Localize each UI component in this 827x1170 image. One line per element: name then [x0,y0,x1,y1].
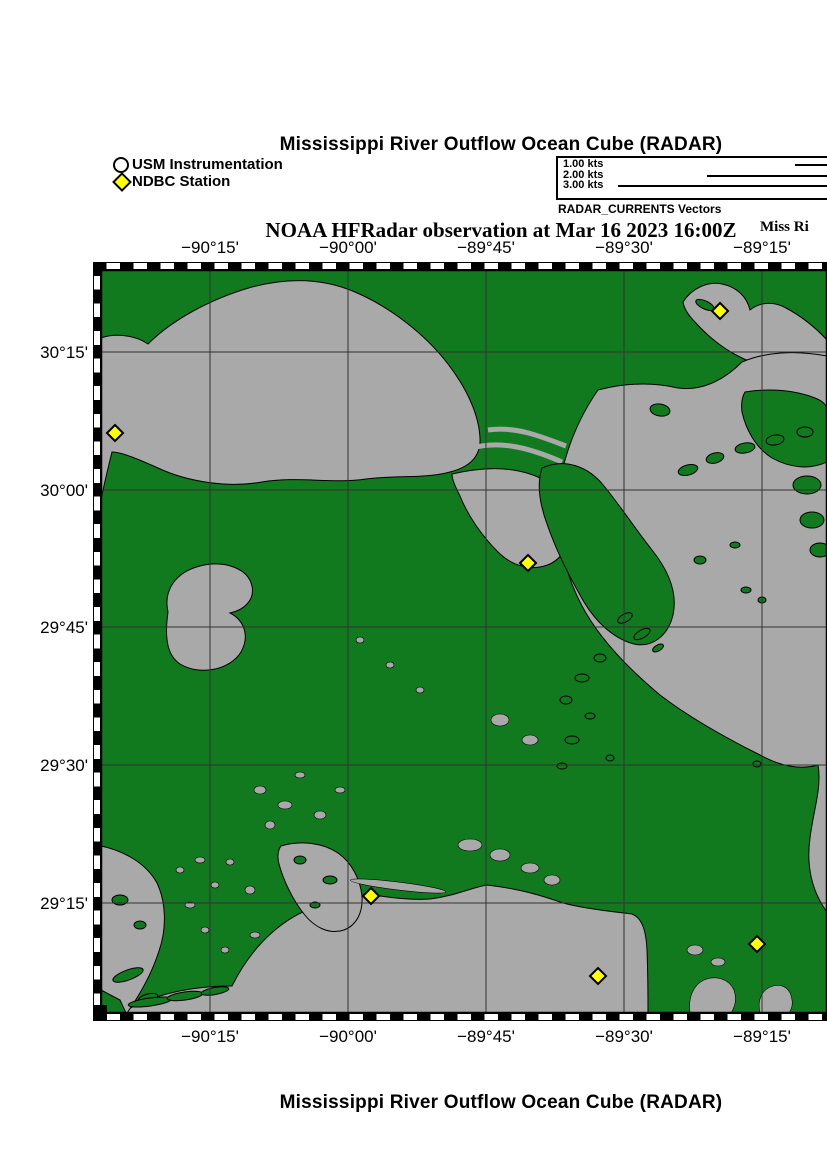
marsh-pond [491,714,509,726]
y-axis-label: 29°45' [26,618,88,638]
x-axis-label: −90°15' [165,1027,255,1047]
map-corner-bl [93,1005,107,1021]
vector-legend-caption: RADAR_CURRENTS Vectors [558,202,721,216]
marsh-island [741,587,751,593]
y-axis-label: 30°15' [26,343,88,363]
footer-title: Mississippi River Outflow Ocean Cube (RA… [101,1092,827,1114]
x-axis-label: −90°00' [303,1027,393,1047]
marsh-pond [265,821,275,829]
marsh-pond [245,886,255,894]
marsh-pond [416,687,424,693]
marsh-pond [314,811,326,819]
marsh-island [557,763,567,769]
marsh-island [810,543,827,557]
scale-line [618,185,827,187]
map-border-bottom [93,1013,827,1021]
marsh-pond [295,772,305,778]
marsh-island [565,736,579,744]
marsh-island [575,674,589,682]
marsh-pond [195,857,205,863]
marsh-pond [211,882,219,888]
x-axis-label: −89°45' [441,238,531,258]
marsh-pond [544,875,560,885]
usm-circle-icon [113,157,129,173]
map-corner-tl [93,262,102,271]
marsh-pond [226,859,234,865]
marsh-island [323,876,337,884]
marsh-pond [250,932,260,938]
x-axis-label: −89°45' [441,1027,531,1047]
marsh-island [793,476,821,494]
marsh-pond [221,947,229,953]
page-title: Mississippi River Outflow Ocean Cube (RA… [101,134,827,156]
radar-map-page: Mississippi River Outflow Ocean Cube (RA… [0,0,827,1170]
y-axis-label: 29°15' [26,894,88,914]
x-axis-label: −89°15' [717,1027,807,1047]
vector-scale-legend: 1.00 kts2.00 kts3.00 kts [556,156,827,200]
marsh-island [694,556,706,564]
x-axis-label: −90°00' [303,238,393,258]
map-border-top [93,262,827,270]
x-axis-label: −89°30' [579,1027,669,1047]
legend-ndbc-label: NDBC Station [132,173,230,190]
kts-label: 3.00 kts [563,180,603,191]
marsh-pond [458,839,482,851]
marsh-pond [335,787,345,793]
marsh-pond [356,637,364,643]
scale-line [707,175,827,177]
marsh-island [134,921,146,929]
marsh-pond [201,927,209,933]
marsh-island [753,761,761,767]
marsh-pond [490,849,510,861]
marsh-island [594,654,606,662]
marsh-pond [386,662,394,668]
marsh-island [585,713,595,719]
delta-pond-1 [687,945,703,955]
y-axis-label: 30°00' [26,481,88,501]
x-axis-label: −89°30' [579,238,669,258]
marsh-island [797,427,813,437]
legend-usm-label: USM Instrumentation [132,156,283,173]
x-axis-label: −90°15' [165,238,255,258]
marsh-pond [278,801,292,809]
map-canvas [101,270,827,1013]
marsh-pond [521,863,539,873]
ndbc-diamond-icon [112,172,132,192]
map-frame [93,262,827,1021]
x-axis-label: −89°15' [717,238,807,258]
delta-pond-2 [711,958,725,966]
marsh-island [560,696,572,704]
marsh-island [606,755,614,761]
map-border-left [93,262,101,1021]
y-axis-label: 29°30' [26,756,88,776]
scale-line [795,164,827,166]
marsh-pond [522,735,538,745]
marsh-pond [254,786,266,794]
vector-scale-labels: 1.00 kts2.00 kts3.00 kts [563,159,603,191]
marsh-island [730,542,740,548]
clipped-right-label: Miss Ri [760,219,827,236]
marsh-pond [176,867,184,873]
kts-label: 1.00 kts [563,159,603,170]
marsh-island [294,856,306,864]
marsh-island [800,512,824,528]
